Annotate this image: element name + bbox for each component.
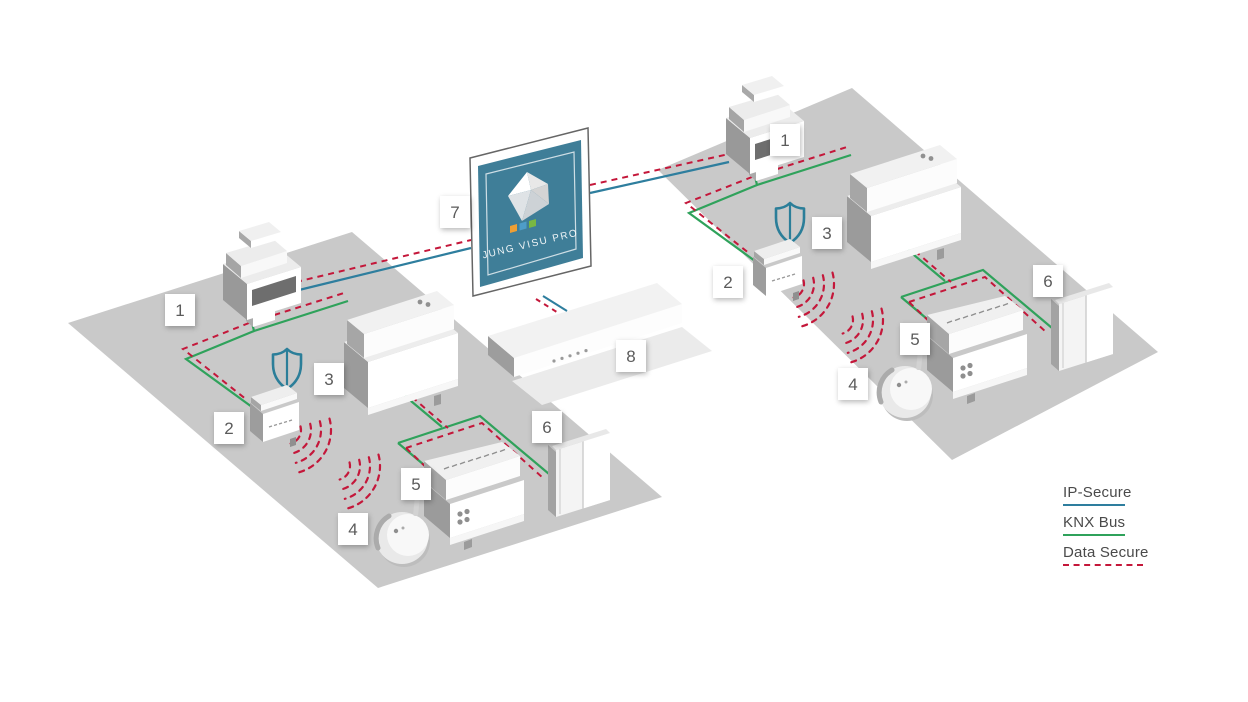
legend-line-data-secure <box>1063 564 1143 566</box>
marker-right-3: 3 <box>812 217 842 249</box>
device-8-ip-server <box>488 283 712 405</box>
knx-topology-diagram: JUNG VISU PRO 1 2 3 4 5 6 1 2 3 4 5 6 7 … <box>0 0 1248 702</box>
legend: IP-Secure KNX Bus Data Secure <box>1063 484 1149 574</box>
marker-left-6: 6 <box>532 411 562 443</box>
marker-monitor-7: 7 <box>440 196 470 228</box>
legend-item-ip-secure: IP-Secure <box>1063 484 1149 506</box>
legend-item-knx-bus: KNX Bus <box>1063 514 1149 536</box>
device-7-visu-monitor: JUNG VISU PRO <box>470 128 591 314</box>
legend-label-data-secure: Data Secure <box>1063 544 1149 561</box>
marker-left-5: 5 <box>401 468 431 500</box>
legend-label-knx-bus: KNX Bus <box>1063 514 1149 531</box>
marker-left-3: 3 <box>314 363 344 395</box>
marker-left-4: 4 <box>338 513 368 545</box>
marker-right-1: 1 <box>770 124 800 156</box>
marker-server-8: 8 <box>616 340 646 372</box>
marker-right-6: 6 <box>1033 265 1063 297</box>
marker-left-1: 1 <box>165 294 195 326</box>
monitor-stand-ip-line <box>543 296 567 311</box>
marker-right-2: 2 <box>713 266 743 298</box>
legend-label-ip-secure: IP-Secure <box>1063 484 1149 501</box>
legend-item-data-secure: Data Secure <box>1063 544 1149 566</box>
marker-right-5: 5 <box>900 323 930 355</box>
monitor-stand-data-line <box>536 299 560 314</box>
marker-left-2: 2 <box>214 412 244 444</box>
marker-right-4: 4 <box>838 368 868 400</box>
legend-line-knx-bus <box>1063 534 1125 536</box>
legend-line-ip-secure <box>1063 504 1125 506</box>
